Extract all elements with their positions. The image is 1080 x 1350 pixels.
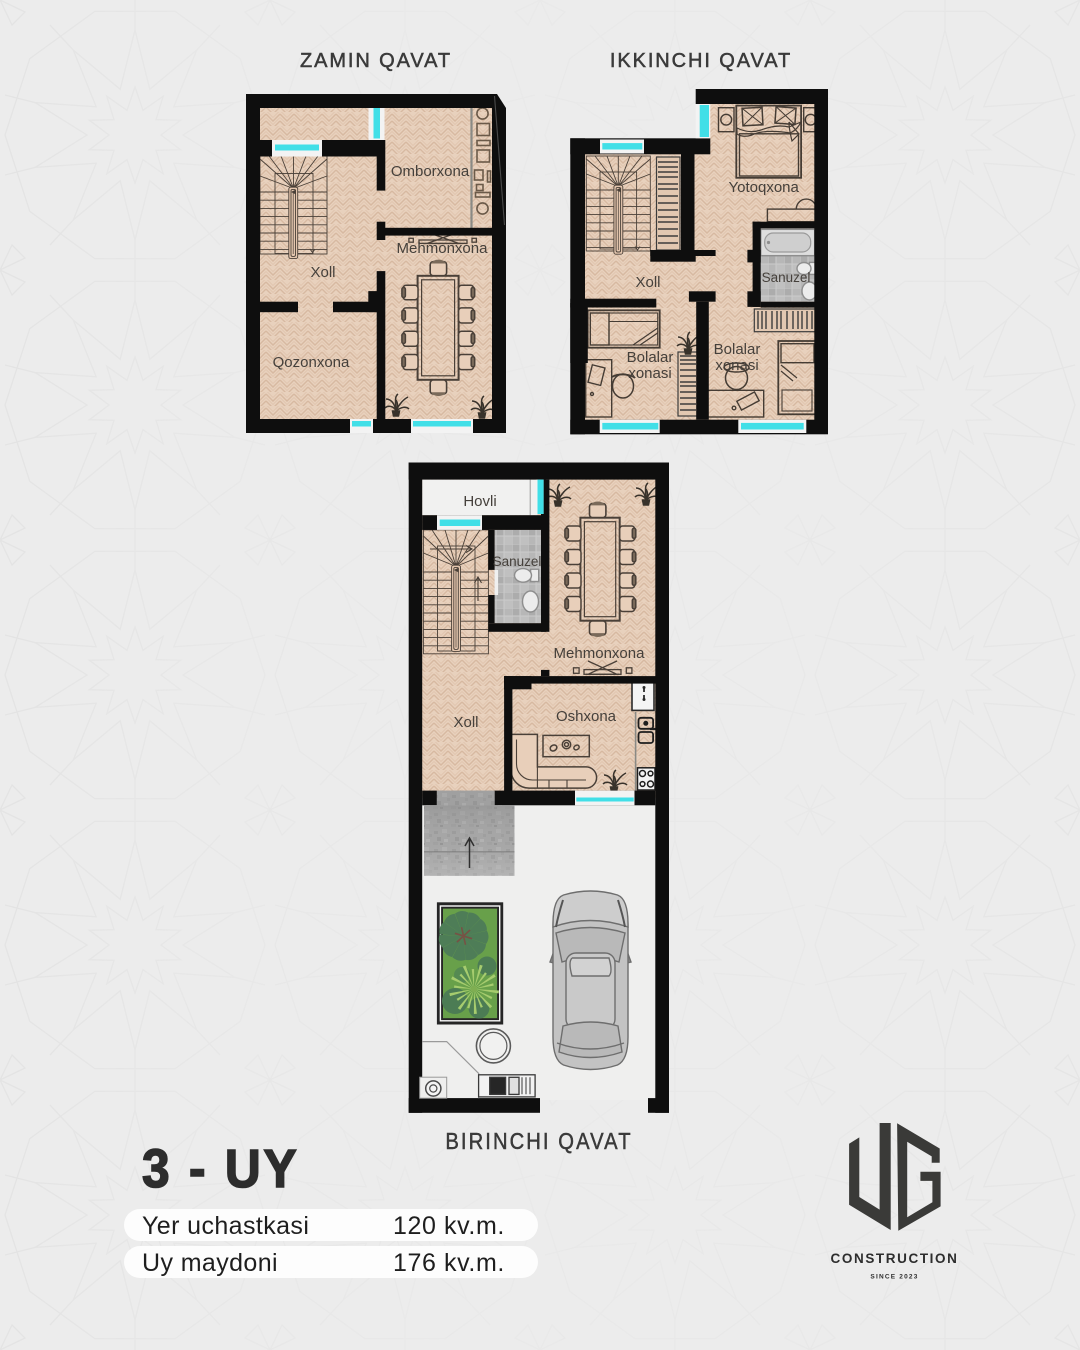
svg-text:Mehmonxona: Mehmonxona xyxy=(554,645,646,662)
svg-text:xonasi: xonasi xyxy=(715,357,758,374)
svg-text:Omborxona: Omborxona xyxy=(391,163,470,180)
svg-text:xonasi: xonasi xyxy=(628,365,671,382)
svg-text:Bolalar: Bolalar xyxy=(714,341,761,358)
svg-text:Sanuzel: Sanuzel xyxy=(762,270,811,285)
svg-text:Hovli: Hovli xyxy=(463,493,496,510)
svg-text:Mehmonxona: Mehmonxona xyxy=(397,240,489,257)
svg-text:Bolalar: Bolalar xyxy=(627,349,674,366)
svg-text:CONSTRUCTION: CONSTRUCTION xyxy=(831,1251,959,1266)
svg-text:SINCE 2023: SINCE 2023 xyxy=(870,1274,918,1281)
svg-text:Sanuzel: Sanuzel xyxy=(493,554,542,569)
svg-text:Qozonxona: Qozonxona xyxy=(273,354,350,371)
svg-text:Xoll: Xoll xyxy=(635,274,660,291)
svg-text:Xoll: Xoll xyxy=(310,264,335,281)
svg-text:Oshxona: Oshxona xyxy=(556,708,617,725)
svg-text:Yotoqxona: Yotoqxona xyxy=(729,179,800,196)
svg-text:Xoll: Xoll xyxy=(453,714,478,731)
